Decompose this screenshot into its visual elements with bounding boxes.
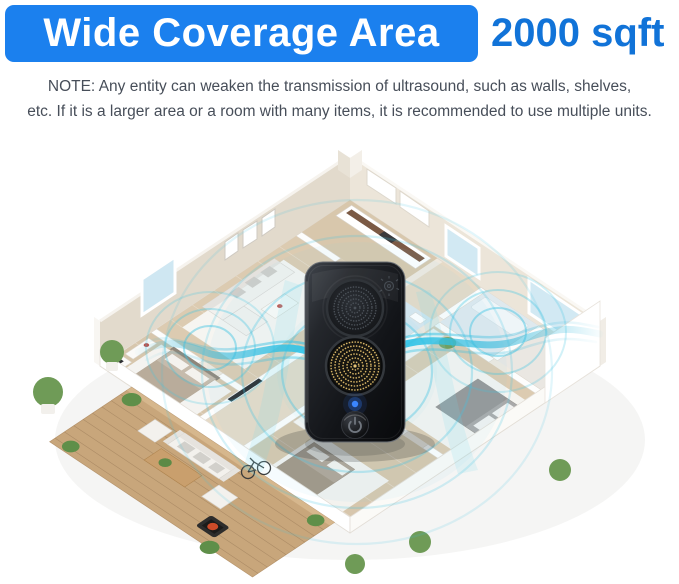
- note-text: NOTE: Any entity can weaken the transmis…: [10, 74, 669, 124]
- ultrasonic-emitter-icon: [326, 337, 384, 395]
- banner-title: Wide Coverage Area: [43, 11, 439, 56]
- product-graphic: Wide Coverage Area 2000 sqft NOTE: Any e…: [0, 0, 679, 584]
- header: Wide Coverage Area 2000 sqft: [5, 5, 673, 62]
- coverage-value: 2000 sqft: [491, 11, 664, 56]
- note-line-2: etc. If it is a larger area or a room wi…: [10, 99, 669, 124]
- coverage-banner: Wide Coverage Area: [5, 5, 478, 62]
- floor-plan-illustration: [0, 140, 679, 584]
- power-button: [342, 412, 369, 439]
- speaker-grille-icon: [323, 276, 387, 340]
- note-line-1: NOTE: Any entity can weaken the transmis…: [10, 74, 669, 99]
